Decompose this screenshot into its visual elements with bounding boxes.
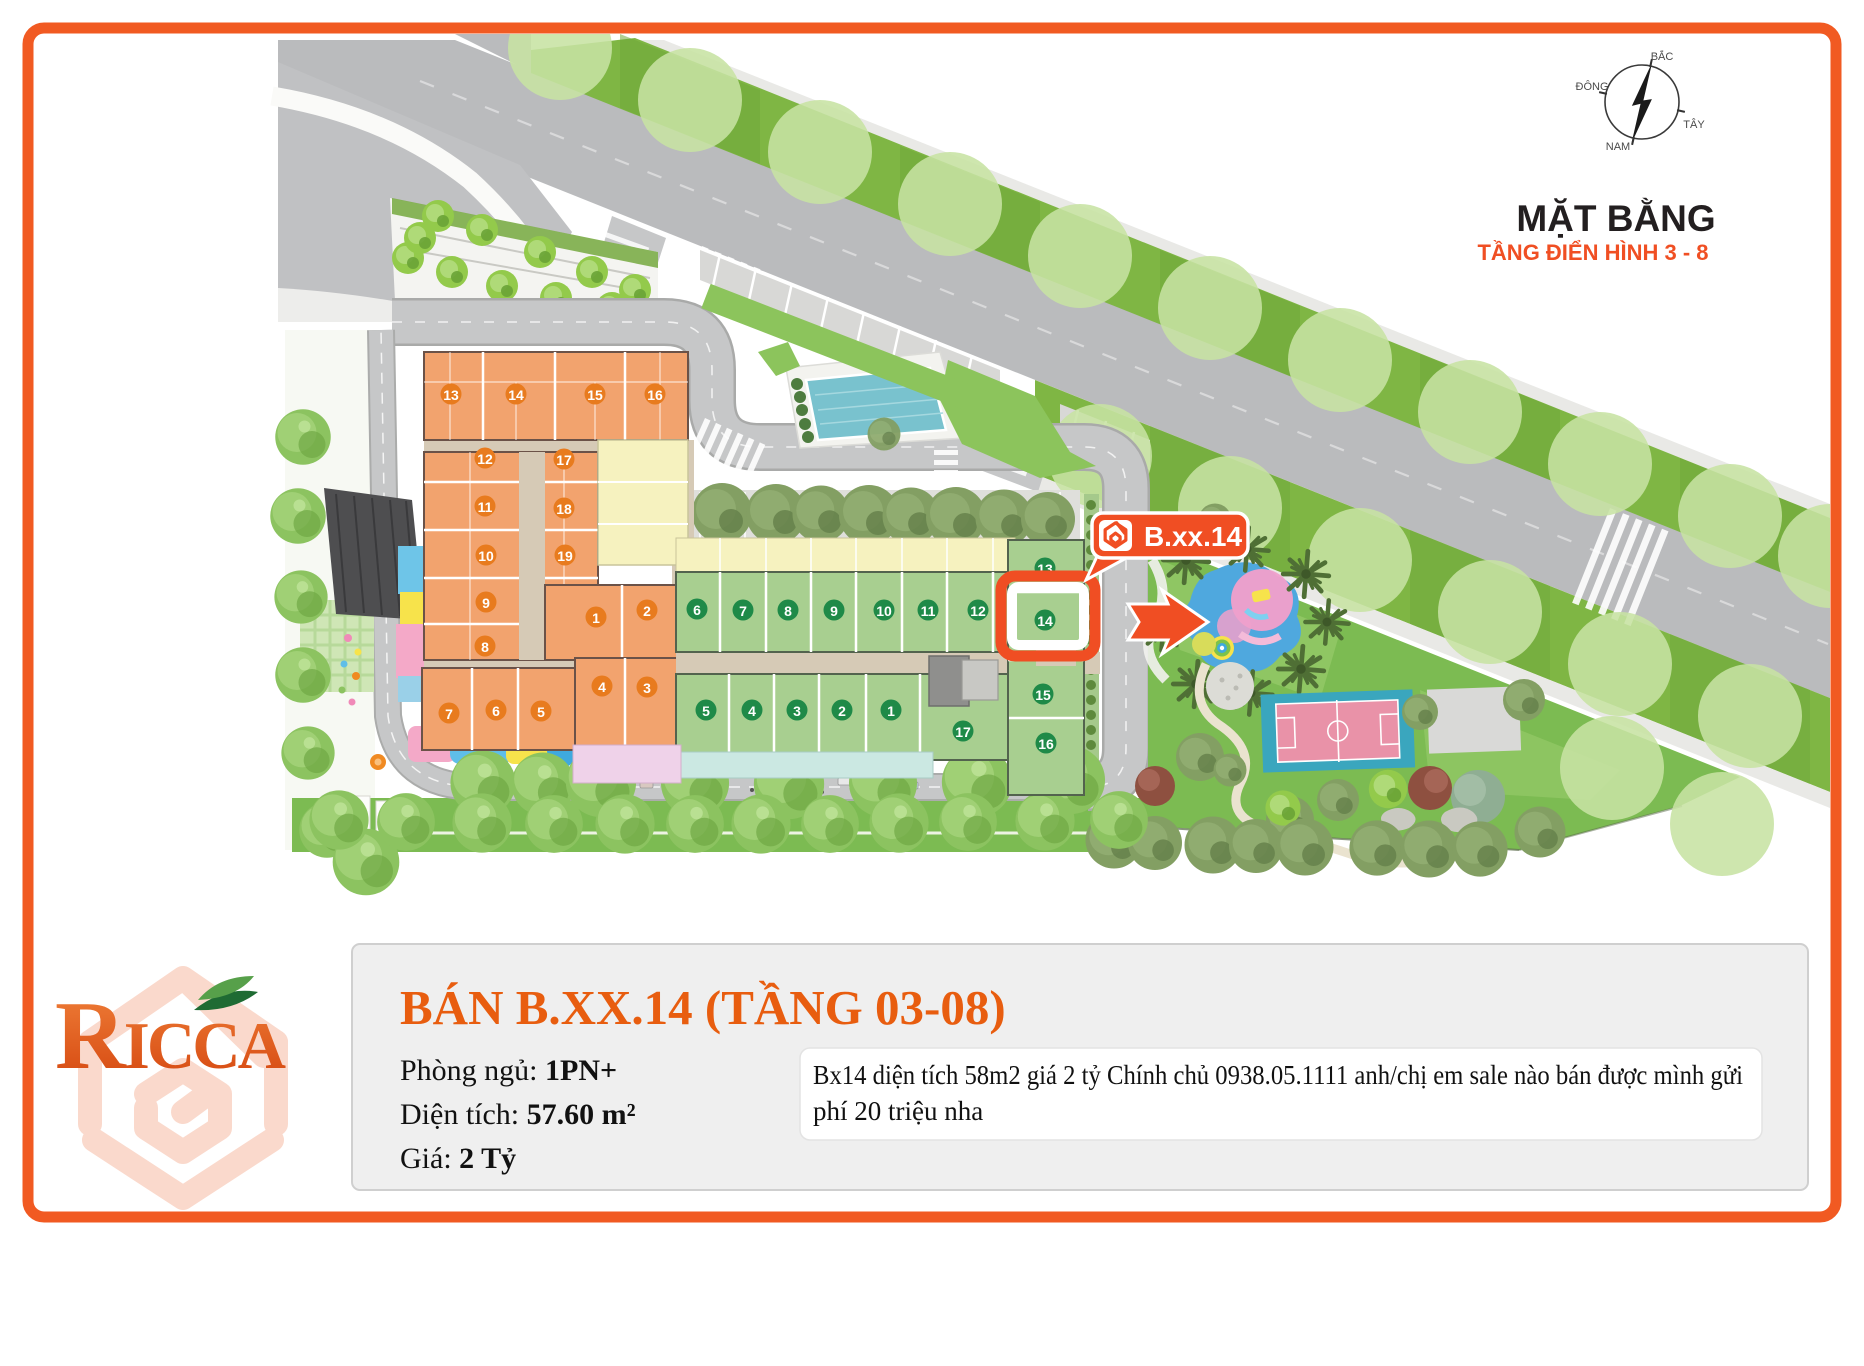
svg-text:11: 11 (478, 499, 493, 515)
svg-text:2: 2 (643, 603, 651, 619)
svg-text:3: 3 (643, 680, 651, 696)
svg-text:1: 1 (592, 610, 600, 626)
svg-text:9: 9 (830, 603, 838, 619)
svg-text:18: 18 (556, 501, 572, 517)
svg-text:2: 2 (838, 703, 846, 719)
svg-text:8: 8 (784, 603, 792, 619)
svg-text:5: 5 (537, 704, 545, 720)
svg-text:14: 14 (508, 387, 524, 403)
svg-text:19: 19 (557, 548, 573, 564)
svg-text:17: 17 (955, 724, 971, 740)
svg-text:12: 12 (970, 603, 986, 619)
svg-text:Diện tích: 57.60 m²: Diện tích: 57.60 m² (400, 1098, 636, 1131)
svg-text:Giá: 2 Tỷ: Giá: 2 Tỷ (400, 1142, 516, 1175)
svg-text:10: 10 (876, 603, 892, 619)
svg-text:6: 6 (693, 602, 701, 618)
svg-text:13: 13 (443, 387, 459, 403)
svg-text:7: 7 (739, 603, 747, 619)
svg-text:16: 16 (647, 387, 663, 403)
svg-text:8: 8 (481, 639, 489, 655)
svg-text:12: 12 (477, 451, 493, 467)
svg-text:15: 15 (587, 387, 603, 403)
svg-text:7: 7 (445, 706, 453, 722)
svg-text:4: 4 (748, 703, 756, 719)
svg-text:16: 16 (1038, 736, 1054, 752)
svg-text:17: 17 (556, 452, 572, 468)
svg-text:ĐÔNG: ĐÔNG (1576, 80, 1609, 93)
svg-text:9: 9 (482, 595, 490, 611)
svg-text:Bx14 diện tích 58m2 giá 2 tỷ C: Bx14 diện tích 58m2 giá 2 tỷ Chính chủ 0… (813, 1060, 1743, 1090)
svg-text:BÁN B.XX.14 (TẦNG 03-08): BÁN B.XX.14 (TẦNG 03-08) (400, 980, 1006, 1035)
svg-text:MẶT BẰNG: MẶT BẰNG (1516, 198, 1715, 239)
svg-text:11: 11 (921, 603, 936, 619)
svg-text:B.xx.14: B.xx.14 (1144, 521, 1242, 552)
svg-text:Phòng ngủ: 1PN+: Phòng ngủ: 1PN+ (400, 1054, 617, 1087)
svg-text:6: 6 (492, 703, 500, 719)
svg-text:1: 1 (887, 703, 895, 719)
svg-text:14: 14 (1037, 613, 1053, 629)
svg-text:TẦNG ĐIỂN HÌNH 3 - 8: TẦNG ĐIỂN HÌNH 3 - 8 (1477, 240, 1708, 265)
svg-text:TÂY: TÂY (1683, 118, 1705, 131)
svg-text:4: 4 (598, 679, 606, 695)
svg-text:BẮC: BẮC (1651, 50, 1674, 63)
svg-text:phí 20 triệu nha: phí 20 triệu nha (813, 1096, 983, 1126)
svg-text:5: 5 (702, 703, 710, 719)
svg-text:NAM: NAM (1606, 141, 1630, 153)
svg-text:15: 15 (1035, 687, 1051, 703)
svg-text:3: 3 (793, 703, 801, 719)
svg-text:10: 10 (478, 548, 494, 564)
